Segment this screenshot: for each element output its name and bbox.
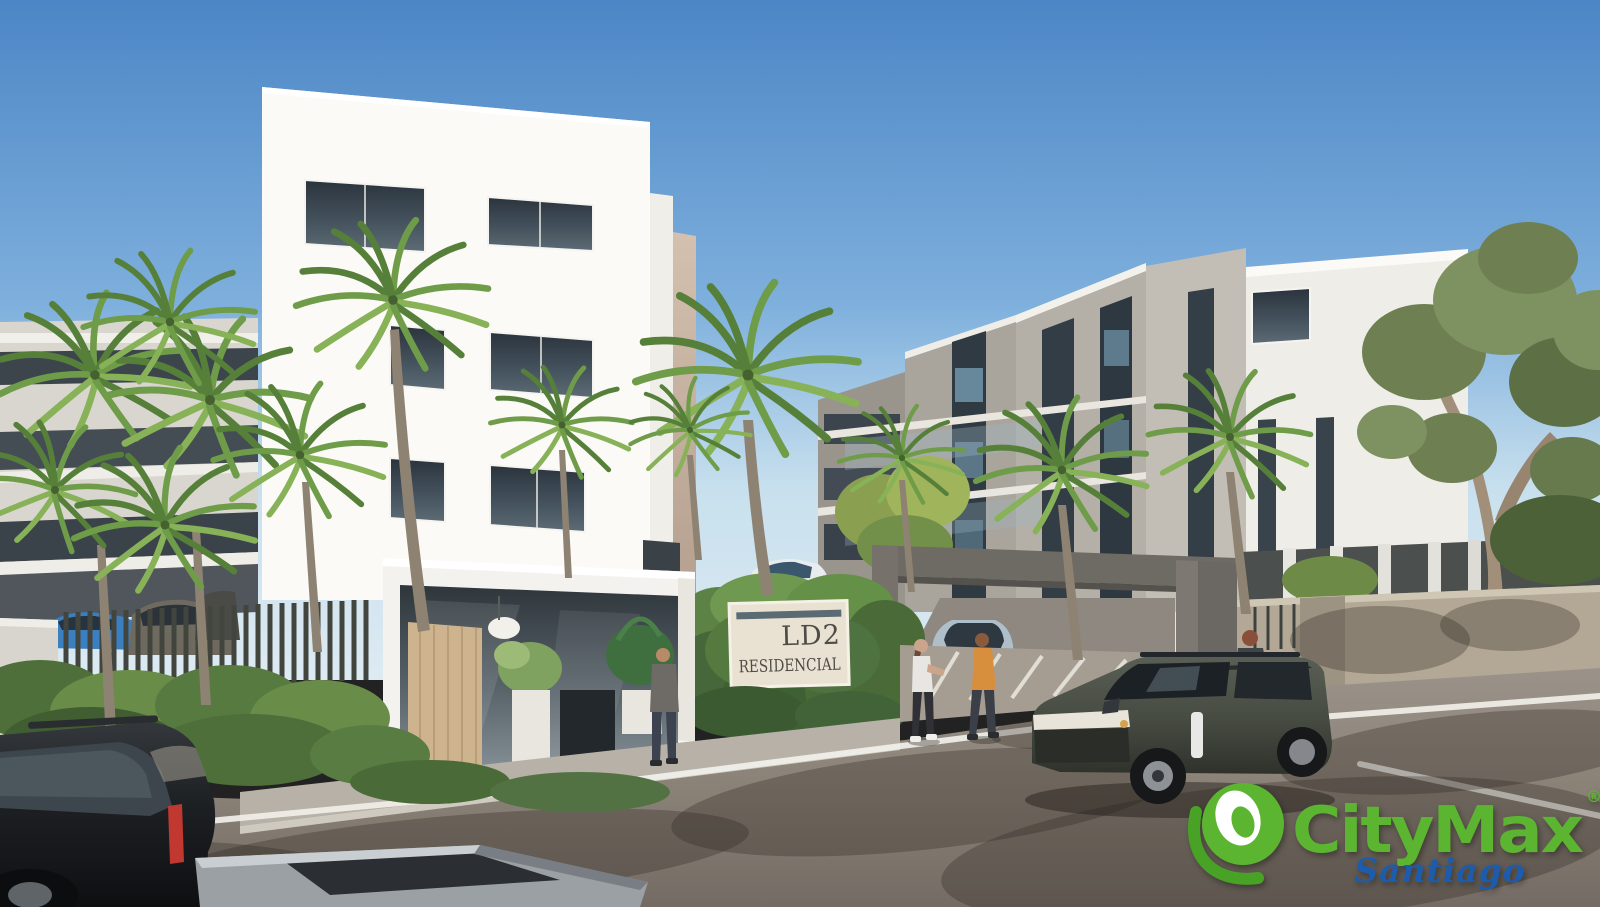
project-sign: LD2 RESIDENCIAL [729,600,849,687]
registered-mark: ® [1586,787,1600,806]
scene: LD2 RESIDENCIAL [0,0,1600,907]
rendered-photo: LD2 RESIDENCIAL [0,0,1600,907]
window [1252,288,1310,344]
sign-line2: RESIDENCIAL [738,655,840,678]
region-text: Santiago [1354,851,1525,890]
black-suv-rear [0,715,215,907]
sign-line1: LD2 [781,620,842,653]
window [390,458,445,522]
